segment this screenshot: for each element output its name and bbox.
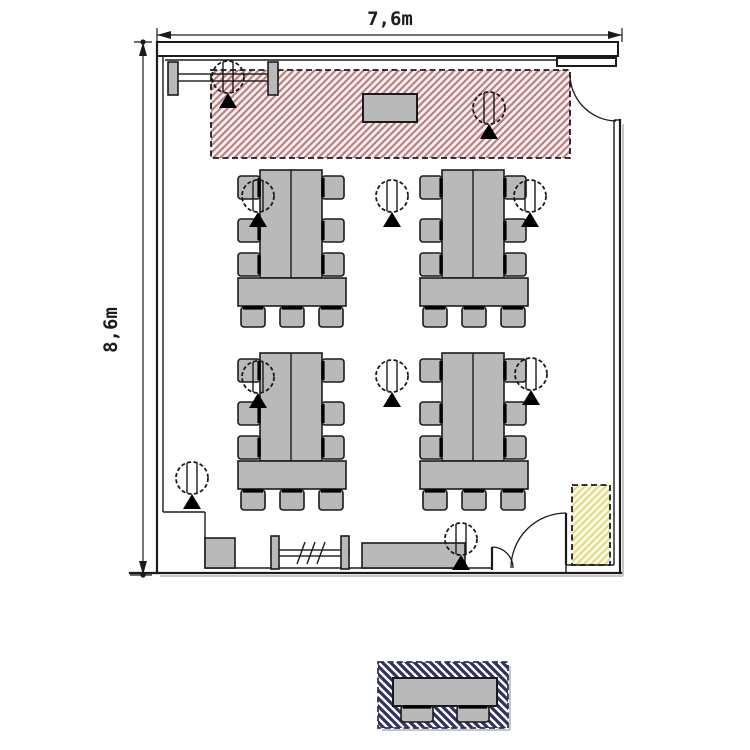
table-group-bottom-left	[238, 353, 346, 510]
door-bottom-right	[492, 513, 566, 570]
width-dimension: 7,6m	[157, 8, 622, 42]
door-swing-arc	[511, 513, 566, 568]
teacher-desk	[363, 94, 417, 122]
radiator	[271, 536, 349, 569]
door-lintel	[557, 58, 616, 66]
table-group-top-right	[420, 170, 528, 327]
light-fixture-icon	[376, 180, 408, 227]
cabinet-small	[205, 538, 235, 568]
table-group-bottom-right	[420, 353, 528, 510]
dimension-arrow	[608, 31, 622, 39]
floor-plan-drawing: 7,6m 8,6m	[0, 0, 750, 750]
top-wall	[157, 42, 618, 56]
radiator-post	[271, 536, 279, 569]
cabinet-long	[362, 543, 465, 568]
door-swing-arc	[570, 74, 616, 121]
light-fixture-icon	[376, 360, 408, 407]
detail-table	[393, 678, 497, 706]
door-top-right	[570, 74, 616, 121]
height-dimension: 8,6m	[100, 39, 152, 577]
chair	[457, 706, 489, 722]
light-fixture-icon	[176, 462, 208, 509]
floor-plan: 7,6m 8,6m	[0, 0, 750, 750]
door-corner-zone	[572, 485, 610, 565]
dimension-arrow	[139, 42, 147, 56]
chair	[401, 706, 433, 722]
board-post	[268, 62, 278, 95]
radiator-post	[341, 536, 349, 569]
radiator-hatch-marks	[297, 542, 325, 564]
dimension-arrow	[157, 31, 171, 39]
table-detail-legend	[378, 662, 510, 730]
table-group-top-left	[238, 170, 346, 327]
height-dimension-label: 8,6m	[100, 307, 122, 353]
board-post	[168, 62, 178, 95]
door-small-swing-arc	[492, 547, 513, 568]
width-dimension-label: 7,6m	[367, 8, 413, 30]
